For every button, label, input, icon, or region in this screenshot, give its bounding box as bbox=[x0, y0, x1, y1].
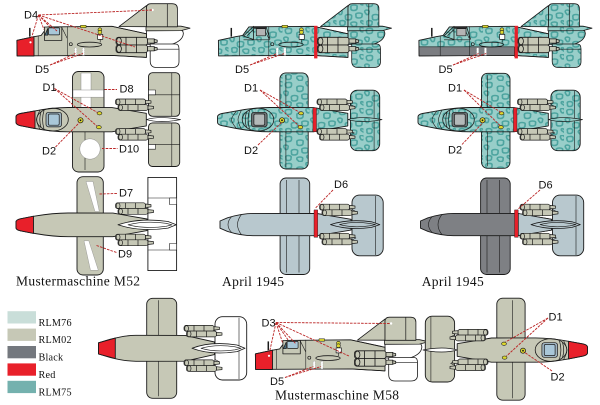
svg-text:Mustermaschine M58: Mustermaschine M58 bbox=[275, 388, 399, 403]
svg-text:RLM02: RLM02 bbox=[39, 335, 72, 346]
svg-text:D5: D5 bbox=[235, 64, 249, 76]
svg-text:D2: D2 bbox=[244, 145, 258, 157]
svg-text:D10: D10 bbox=[119, 144, 139, 156]
svg-text:D1: D1 bbox=[244, 83, 258, 95]
svg-text:D1: D1 bbox=[549, 312, 563, 324]
svg-text:Mustermaschine M52: Mustermaschine M52 bbox=[16, 274, 140, 289]
svg-text:April 1945: April 1945 bbox=[422, 274, 484, 289]
svg-text:D6: D6 bbox=[334, 179, 348, 191]
svg-text:RLM76: RLM76 bbox=[39, 318, 72, 329]
svg-text:D1: D1 bbox=[448, 83, 462, 95]
svg-text:D2: D2 bbox=[42, 146, 56, 158]
svg-text:D2: D2 bbox=[448, 145, 462, 157]
svg-text:RLM75: RLM75 bbox=[39, 387, 72, 398]
svg-text:D3: D3 bbox=[262, 318, 276, 330]
svg-text:D8: D8 bbox=[120, 84, 134, 96]
svg-text:D5: D5 bbox=[270, 376, 284, 388]
svg-text:D2: D2 bbox=[551, 372, 565, 384]
svg-text:D7: D7 bbox=[119, 188, 133, 200]
svg-text:D5: D5 bbox=[439, 64, 453, 76]
svg-text:Red: Red bbox=[39, 370, 56, 381]
svg-text:D1: D1 bbox=[43, 82, 57, 94]
svg-text:D9: D9 bbox=[118, 249, 132, 261]
svg-text:D4: D4 bbox=[24, 10, 38, 22]
svg-text:Black: Black bbox=[39, 353, 64, 364]
svg-text:D6: D6 bbox=[539, 180, 553, 192]
svg-text:April 1945: April 1945 bbox=[222, 274, 284, 289]
svg-text:D5: D5 bbox=[35, 64, 49, 76]
